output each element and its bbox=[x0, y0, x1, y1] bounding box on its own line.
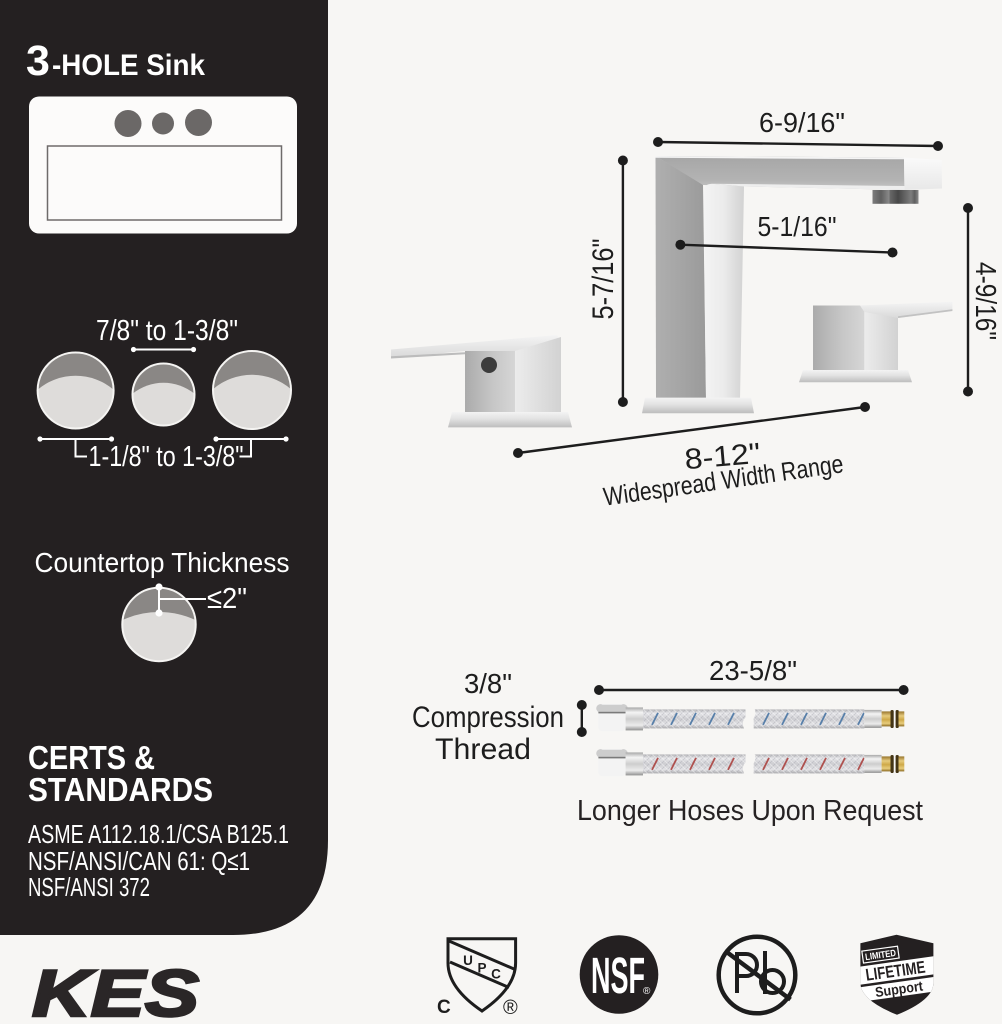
svg-text:3/8": 3/8" bbox=[464, 668, 512, 699]
svg-text:C: C bbox=[437, 997, 451, 1018]
svg-text:STANDARDS: STANDARDS bbox=[28, 771, 213, 808]
svg-text:1-1/8" to 1-3/8": 1-1/8" to 1-3/8" bbox=[89, 441, 244, 473]
svg-text:C: C bbox=[491, 967, 501, 982]
svg-text:Thread: Thread bbox=[435, 733, 531, 766]
svg-text:P: P bbox=[477, 961, 486, 976]
svg-text:Countertop Thickness: Countertop Thickness bbox=[35, 547, 290, 578]
svg-text:Longer Hoses Upon Request: Longer Hoses Upon Request bbox=[577, 795, 923, 827]
svg-text:ASME A112.18.1/CSA B125.1: ASME A112.18.1/CSA B125.1 bbox=[28, 819, 289, 849]
svg-text:3: 3 bbox=[26, 37, 50, 85]
svg-text:6-9/16": 6-9/16" bbox=[759, 107, 845, 138]
svg-text:4-9/16": 4-9/16" bbox=[969, 262, 1001, 340]
svg-text:Compression: Compression bbox=[412, 701, 564, 734]
svg-text:®: ® bbox=[643, 986, 651, 997]
svg-text:-HOLE Sink: -HOLE Sink bbox=[52, 49, 205, 82]
svg-text:7/8" to 1-3/8": 7/8" to 1-3/8" bbox=[96, 315, 238, 347]
svg-text:KES: KES bbox=[32, 956, 199, 1024]
svg-text:NSF/ANSI 372: NSF/ANSI 372 bbox=[28, 872, 150, 902]
svg-text:NSF: NSF bbox=[591, 947, 645, 1004]
svg-text:5-7/16": 5-7/16" bbox=[587, 239, 620, 320]
svg-text:≤2": ≤2" bbox=[207, 583, 247, 615]
svg-text:®: ® bbox=[503, 997, 518, 1019]
svg-text:5-1/16": 5-1/16" bbox=[758, 211, 837, 242]
svg-text:23-5/8": 23-5/8" bbox=[709, 655, 797, 686]
svg-text:U: U bbox=[463, 953, 473, 968]
